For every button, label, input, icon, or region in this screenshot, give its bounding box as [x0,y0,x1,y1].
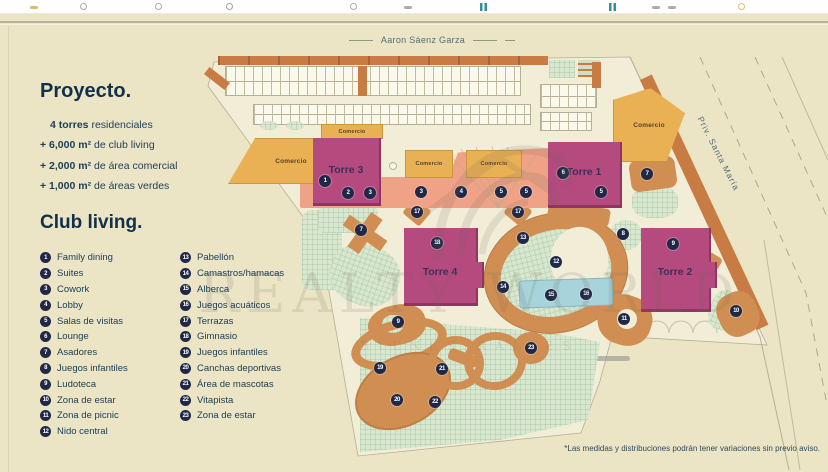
legend-item-label: Cowork [57,284,89,295]
amenity-marker-15: 15 [545,289,557,301]
legend-item-label: Vitapista [197,395,233,406]
legend-number-badge: 7 [40,347,51,358]
page-divider [0,21,828,23]
legend-number-badge: 22 [180,395,191,406]
amenity-marker-11: 11 [618,313,630,325]
project-feature-line: + 1,000 m² de áreas verdes [40,176,270,196]
amenity-marker-5: 5 [595,186,607,198]
dot-toolbar-icon[interactable] [155,3,162,10]
project-feature-line: + 6,000 m² de club living [40,135,270,155]
legend-item-21: 21Área de mascotas [180,376,322,392]
amenity-marker-14: 14 [497,281,509,293]
legend-item-18: 18Gimnasio [180,329,322,345]
legend-item-label: Canchas deportivas [197,363,281,374]
legend-item-label: Ludoteca [57,379,96,390]
street-dash [505,40,515,41]
parking-row-3 [540,84,597,108]
feature-description: de club living [91,139,155,151]
legend-item-label: Gimnasio [197,331,237,342]
legend-number-badge: 20 [180,363,191,374]
tower-label: Torre 2 [641,266,709,278]
legend-number-badge: 5 [40,316,51,327]
legend-item-7: 7Asadores [40,345,172,361]
legend-number-badge: 12 [40,426,51,437]
legend-number-badge: 6 [40,331,51,342]
legend-number-badge: 17 [180,316,191,327]
amenity-marker-3: 3 [415,186,427,198]
bar-toolbar-icon[interactable] [30,6,38,9]
amenity-marker-9: 9 [667,238,679,250]
legend-item-label: Terrazas [197,316,233,327]
legend-number-badge: 19 [180,347,191,358]
feature-description: de áreas verdes [91,180,169,192]
bar-toolbar-icon[interactable] [668,6,676,9]
commercial-label: Comercio [633,122,665,129]
street-label-top: Aaron Sáenz Garza [322,33,542,47]
amenity-marker-7: 7 [641,168,653,180]
commercial-building-3: Comercio [405,150,453,178]
legend-item-12: 12Nido central [40,424,172,440]
feature-value: + 6,000 m² [40,139,91,151]
swimming-pool [519,277,614,308]
legend-number-badge: 13 [180,252,191,263]
legend-item-15: 15Alberca [180,282,322,298]
legend-item-label: Juegos infantiles [57,363,128,374]
street-far-edge [782,57,828,160]
amenity-marker-2: 2 [342,187,354,199]
amenity-marker-16: 16 [580,288,592,300]
legend-number-badge: 16 [180,300,191,311]
tower-notch [709,262,717,288]
street-dash [349,40,373,41]
amenity-marker-4: 4 [455,186,467,198]
legend-item-23: 23Zona de estar [180,408,322,424]
landscape-oval-2 [286,121,304,130]
legend-item-13: 13Pabellón [180,250,322,266]
legend-item-11: 11Zona de picnic [40,408,172,424]
amenity-marker-17: 17 [512,206,524,218]
browser-toolbar [0,0,828,14]
legend-item-label: Camastros/hamacas [197,268,284,279]
amenity-marker-5: 5 [495,186,507,198]
legend-title: Club living. [40,212,322,234]
parking-divider-2 [592,62,601,88]
legend-item-22: 22Vitapista [180,392,322,408]
amenity-marker-13: 13 [517,232,529,244]
amenity-marker-1: 1 [319,175,331,187]
legend-number-badge: 10 [40,395,51,406]
parking-row-4 [540,112,592,131]
legend-number-badge: 8 [40,363,51,374]
feature-description: de área comercial [91,160,177,172]
legend-number-badge: 23 [180,410,191,421]
dot-toolbar-icon[interactable] [80,3,87,10]
project-title: Proyecto. [40,80,270,103]
legend-number-badge: 21 [180,379,191,390]
legend-columns: 1Family dining2Suites3Cowork4Lobby5Salas… [40,250,322,440]
amenity-marker-21: 21 [436,363,448,375]
feature-value: + 1,000 m² [40,180,91,192]
roundabout-dot [389,162,397,170]
legend-item-9: 9Ludoteca [40,376,172,392]
legend-item-label: Lounge [57,331,89,342]
legend-item-14: 14Camastros/hamacas [180,266,322,282]
legend-item-label: Zona de estar [57,395,116,406]
landscape-strip-1 [549,60,575,78]
legend-item-5: 5Salas de visitas [40,313,172,329]
sidewalk-strip-top [218,56,548,65]
disclaimer-text: *Las medidas y distribuciones podrán ten… [556,444,820,454]
amenity-marker-17: 17 [411,206,423,218]
legend-item-label: Family dining [57,252,113,263]
amenity-marker-18: 18 [431,237,443,249]
legend-item-4: 4Lobby [40,297,172,313]
cols-toolbar-icon[interactable] [609,3,616,11]
cols-toolbar-icon[interactable] [480,3,487,11]
amenity-marker-6: 6 [557,167,569,179]
amenity-marker-5: 5 [520,186,532,198]
legend-column-1: 1Family dining2Suites3Cowork4Lobby5Salas… [40,250,172,440]
amenity-marker-23: 23 [525,342,537,354]
legend-column-2: 13Pabellón14Camastros/hamacas15Alberca16… [180,250,322,440]
amenity-marker-8: 8 [617,228,629,240]
legend-item-10: 10Zona de estar [40,392,172,408]
commercial-label: Comercio [416,161,443,167]
amenity-marker-7: 7 [355,224,367,236]
tower-notch [476,262,484,288]
amenity-marker-10: 10 [730,305,742,317]
commercial-building-2: Comercio [321,124,383,139]
legend-number-badge: 14 [180,268,191,279]
bar-toolbar-icon[interactable] [404,6,412,9]
parking-divider-1 [358,66,367,96]
legend-number-badge: 3 [40,284,51,295]
project-feature-list: 4 torres residenciales+ 6,000 m² de club… [40,115,270,197]
amenity-marker-3: 3 [364,187,376,199]
bar-toolbar-icon[interactable] [652,6,660,9]
legend-item-label: Salas de visitas [57,316,123,327]
page-divider-highlight [0,24,828,25]
legend-item-label: Asadores [57,347,97,358]
legend-item-label: Zona de estar [197,410,256,421]
amenity-marker-20: 20 [391,394,403,406]
legend-item-8: 8Juegos infantiles [40,361,172,377]
legend-item-label: Juegos acuáticos [197,300,270,311]
commercial-building-4: Comercio [466,150,522,178]
amenity-marker-9: 9 [392,316,404,328]
legend-item-label: Juegos infantiles [197,347,268,358]
dot-toolbar-icon[interactable] [738,3,745,10]
amenity-marker-22: 22 [429,396,441,408]
legend-item-label: Área de mascotas [197,379,274,390]
commercial-label: Comercio [275,158,307,165]
tower-label: Torre 4 [404,266,476,278]
legend-item-label: Nido central [57,426,108,437]
feature-description: residenciales [89,119,153,131]
project-summary: Proyecto. 4 torres residenciales+ 6,000 … [40,80,270,197]
legend-number-badge: 15 [180,284,191,295]
legend-item-17: 17Terrazas [180,313,322,329]
legend-item-20: 20Canchas deportivas [180,361,322,377]
legend-number-badge: 11 [40,410,51,421]
dot-toolbar-icon[interactable] [350,3,357,10]
legend-item-2: 2Suites [40,266,172,282]
legend-item-label: Alberca [197,284,229,295]
project-feature-line: + 2,000 m² de área comercial [40,156,270,176]
legend-item-19: 19Juegos infantiles [180,345,322,361]
legend-item-label: Lobby [57,300,83,311]
legend-item-6: 6Lounge [40,329,172,345]
club-living-legend: Club living. 1Family dining2Suites3Cowor… [40,212,322,440]
gear-toolbar-icon[interactable] [226,3,233,10]
legend-item-label: Pabellón [197,252,234,263]
feature-value: 4 torres [50,119,89,131]
street-lane-dash-2 [755,57,828,219]
amenity-marker-12: 12 [550,256,562,268]
legend-number-badge: 1 [40,252,51,263]
amenity-marker-19: 19 [374,362,386,374]
feature-value: + 2,000 m² [40,160,91,172]
legend-item-3: 3Cowork [40,282,172,298]
street-dash [473,40,497,41]
legend-number-badge: 4 [40,300,51,311]
project-feature-line: 4 torres residenciales [40,115,270,135]
legend-item-1: 1Family dining [40,250,172,266]
commercial-label: Comercio [339,129,366,135]
street-name-top: Aaron Sáenz Garza [381,35,465,45]
legend-item-16: 16Juegos acuáticos [180,297,322,313]
legend-item-label: Zona de picnic [57,410,119,421]
street-outer-edge [764,240,800,470]
legend-item-label: Suites [57,268,83,279]
legend-number-badge: 9 [40,379,51,390]
commercial-label: Comercio [481,161,508,167]
legend-number-badge: 2 [40,268,51,279]
site-map: ComercioComercioComercioComercioComercio… [0,0,828,472]
legend-number-badge: 18 [180,331,191,342]
